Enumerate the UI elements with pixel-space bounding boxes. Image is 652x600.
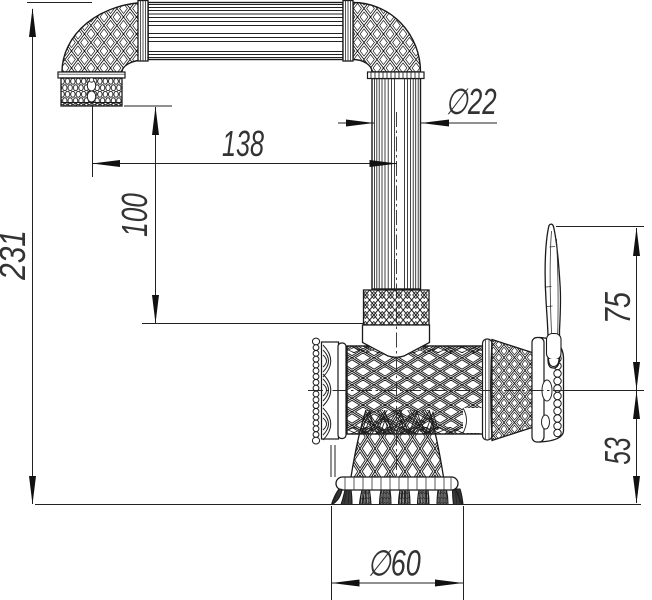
svg-text:231: 231 — [0, 230, 34, 281]
svg-text:100: 100 — [114, 193, 155, 237]
svg-text:∅60: ∅60 — [367, 543, 421, 584]
svg-text:138: 138 — [222, 124, 265, 165]
svg-text:∅22: ∅22 — [445, 82, 496, 122]
svg-text:53: 53 — [597, 437, 638, 464]
svg-text:75: 75 — [597, 291, 638, 324]
